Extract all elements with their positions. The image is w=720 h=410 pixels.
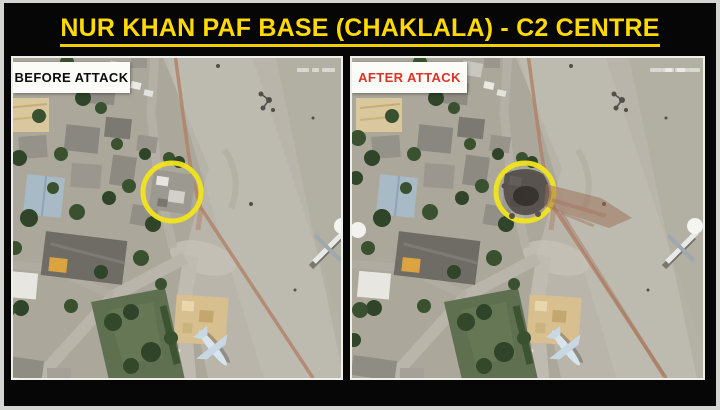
- after-attack-panel: AFTER ATTACK: [350, 56, 705, 380]
- black-canvas: NUR KHAN PAF BASE (CHAKLALA) - C2 CENTRE: [4, 3, 716, 406]
- infographic-frame: NUR KHAN PAF BASE (CHAKLALA) - C2 CENTRE: [0, 0, 720, 410]
- before-attack-label: BEFORE ATTACK: [13, 62, 130, 93]
- title-bar: NUR KHAN PAF BASE (CHAKLALA) - C2 CENTRE: [4, 14, 716, 47]
- satellite-image-before: [13, 58, 341, 378]
- satellite-image-after: [352, 58, 703, 378]
- after-attack-label-text: AFTER ATTACK: [358, 70, 461, 85]
- page-title: NUR KHAN PAF BASE (CHAKLALA) - C2 CENTRE: [60, 14, 659, 47]
- before-attack-panel: BEFORE ATTACK: [11, 56, 343, 380]
- after-attack-label: AFTER ATTACK: [352, 62, 467, 93]
- before-attack-label-text: BEFORE ATTACK: [14, 70, 128, 85]
- watermark-after: [662, 68, 700, 72]
